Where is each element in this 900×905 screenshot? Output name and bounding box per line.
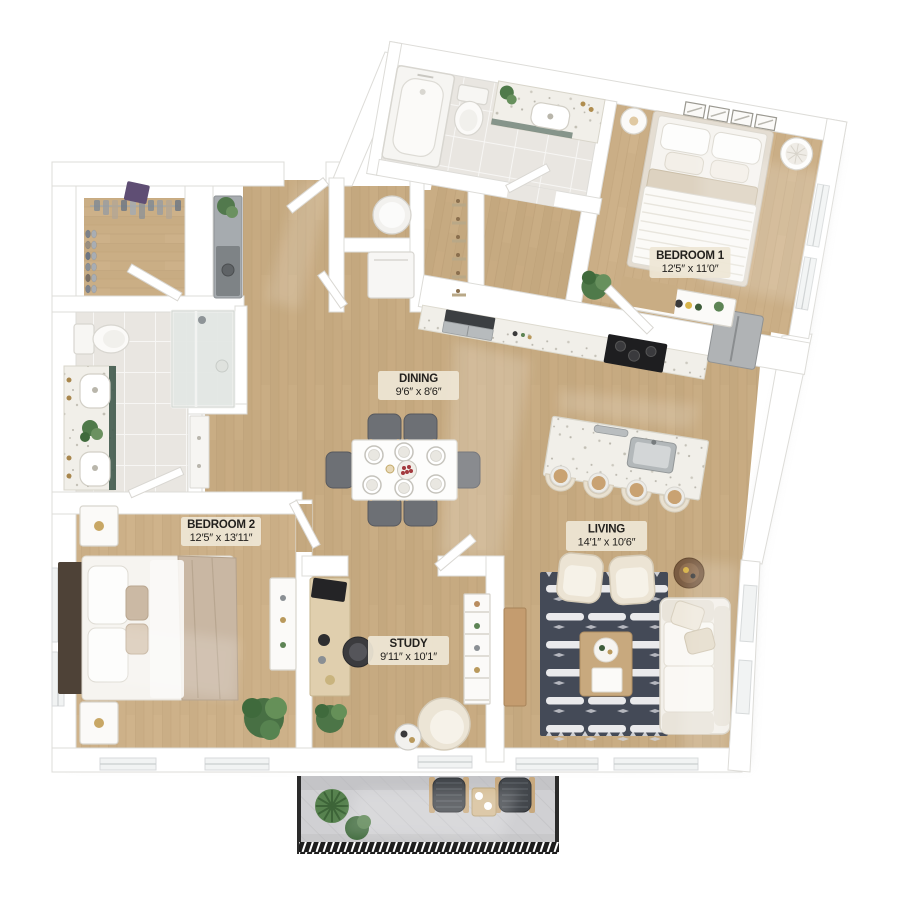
svg-text:9′11″ x 10′1″: 9′11″ x 10′1″ — [380, 651, 437, 663]
svg-text:12′5″ x 11′0″: 12′5″ x 11′0″ — [662, 263, 719, 275]
svg-text:BEDROOM 2: BEDROOM 2 — [187, 519, 255, 531]
svg-text:12′5″ x 13′11″: 12′5″ x 13′11″ — [190, 532, 253, 544]
svg-text:14′1″ x 10′6″: 14′1″ x 10′6″ — [578, 537, 636, 549]
svg-text:DINING: DINING — [399, 373, 438, 385]
svg-text:BEDROOM 1: BEDROOM 1 — [656, 250, 725, 262]
svg-text:LIVING: LIVING — [588, 524, 625, 536]
svg-text:9′6″ x 8′6″: 9′6″ x 8′6″ — [396, 386, 442, 398]
svg-text:STUDY: STUDY — [390, 638, 429, 650]
